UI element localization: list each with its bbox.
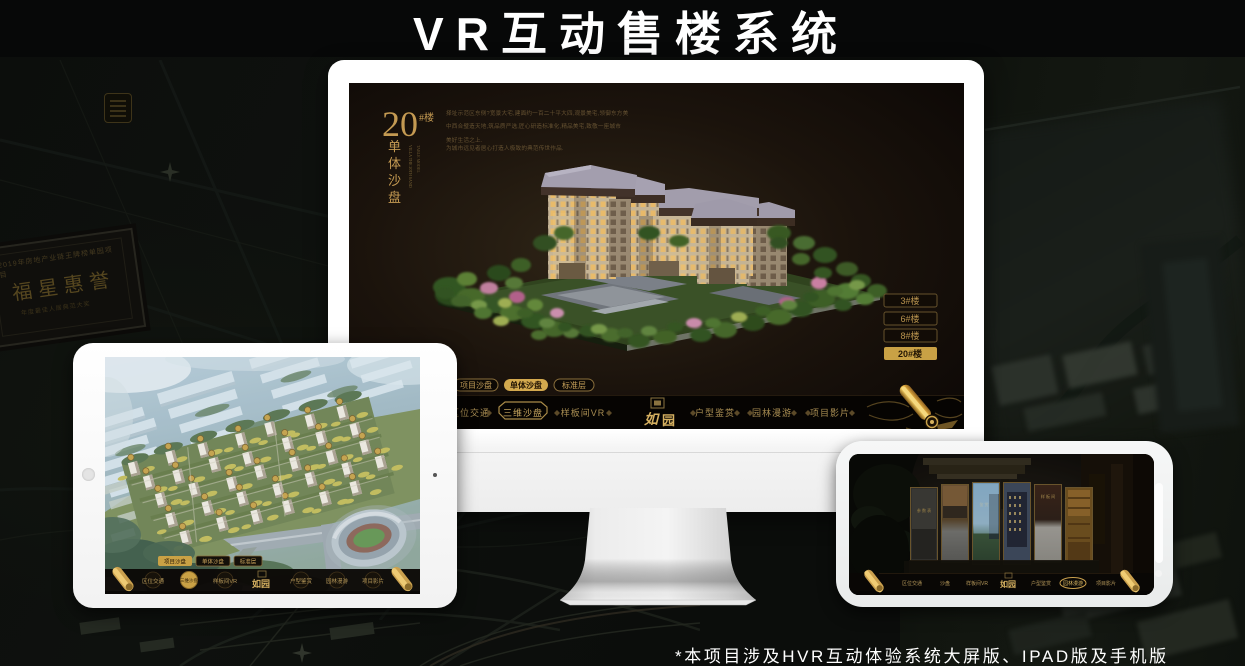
svg-text:园林漫游: 园林漫游	[326, 577, 349, 585]
svg-text:如园: 如园	[252, 578, 270, 589]
svg-text:户型鉴赏: 户型鉴赏	[290, 577, 313, 585]
svg-text:为城市远见者居心打造人极致的典范传世作品.: 为城市远见者居心打造人极致的典范传世作品.	[446, 144, 564, 152]
svg-text:单体沙盘: 单体沙盘	[202, 558, 225, 566]
svg-text:项目影片: 项目影片	[810, 407, 850, 418]
svg-text:三维沙盘: 三维沙盘	[180, 577, 198, 584]
svg-text:项目沙盘: 项目沙盘	[164, 558, 187, 566]
svg-text:单体沙盘: 单体沙盘	[510, 380, 542, 390]
svg-text:TABLE MODEL: TABLE MODEL	[416, 145, 421, 173]
svg-text:VILLA THE 20TH SAND: VILLA THE 20TH SAND	[408, 145, 413, 188]
svg-text:如: 如	[644, 411, 660, 428]
svg-text:标准层: 标准层	[562, 380, 586, 390]
svg-text:中西合璧造天地,筑品质严选,匠心研造标准化,精品美宅,致敬一: 中西合璧造天地,筑品质严选,匠心研造标准化,精品美宅,致敬一座城市	[446, 122, 621, 130]
svg-text:园: 园	[662, 413, 675, 428]
svg-text:户型鉴赏: 户型鉴赏	[1031, 580, 1051, 587]
svg-text:8#楼: 8#楼	[900, 330, 919, 341]
svg-text:户型鉴赏: 户型鉴赏	[695, 407, 735, 418]
svg-text:择址示范区东侧?宽景大宅,建面约一百二十平大四,观景美宅,领: 择址示范区东侧?宽景大宅,建面约一百二十平大四,观景美宅,领御东方美	[446, 109, 629, 117]
svg-text:20: 20	[382, 104, 418, 144]
svg-text:样板间VR: 样板间VR	[966, 580, 988, 587]
svg-text:区位交通: 区位交通	[142, 577, 165, 585]
svg-text:项目影片: 项目影片	[1096, 580, 1116, 587]
svg-text:项目影片: 项目影片	[362, 577, 384, 585]
svg-text:6#楼: 6#楼	[900, 313, 919, 324]
svg-text:三维沙盘: 三维沙盘	[503, 407, 543, 418]
svg-text:盘: 盘	[388, 190, 401, 205]
svg-text:沙: 沙	[388, 173, 401, 188]
svg-text:3#楼: 3#楼	[900, 295, 919, 306]
svg-text:标准层: 标准层	[240, 558, 257, 566]
svg-text:#楼: #楼	[419, 111, 434, 124]
svg-text:项目沙盘: 项目沙盘	[460, 380, 492, 390]
svg-text:如园: 如园	[1000, 579, 1016, 589]
svg-text:样板间VR: 样板间VR	[561, 407, 606, 418]
svg-text:区位交通: 区位交通	[902, 580, 922, 587]
svg-text:20#楼: 20#楼	[898, 348, 922, 359]
svg-text:体: 体	[388, 156, 401, 171]
svg-text:单: 单	[388, 139, 401, 154]
svg-text:沙盘: 沙盘	[940, 580, 950, 587]
svg-text:样板间VR: 样板间VR	[213, 577, 237, 585]
svg-text:园林漫游: 园林漫游	[752, 407, 792, 418]
svg-text:美好生活之上.: 美好生活之上.	[446, 136, 483, 144]
svg-text:园林漫游: 园林漫游	[1063, 580, 1083, 587]
